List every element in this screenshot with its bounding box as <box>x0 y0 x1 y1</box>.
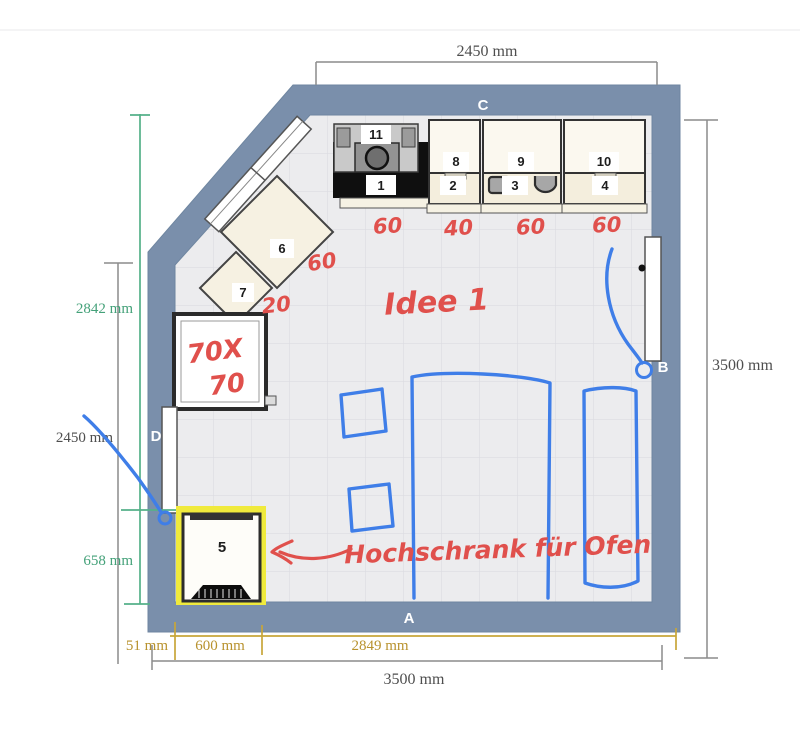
red-size-line2: 70 <box>207 368 247 402</box>
dim-bracket-right <box>684 120 718 658</box>
cabinet-unit-8-2[interactable]: 8 2 <box>427 120 482 213</box>
sink-basin-right <box>535 176 556 192</box>
cabinet-11-number: 11 <box>369 127 383 142</box>
cabinet-5-number: 5 <box>218 539 226 556</box>
red-width-cab6: 60 <box>306 248 339 276</box>
dim-left-lower: 658 mm <box>83 553 133 569</box>
dim-top: 2450 mm <box>457 43 518 60</box>
red-idea-title: Idee 1 <box>383 282 489 322</box>
door-d[interactable] <box>162 407 177 513</box>
cabinet-3-number: 3 <box>511 178 518 193</box>
cabinet-1-number: 1 <box>377 178 384 193</box>
cabinet-6-number: 6 <box>278 241 285 256</box>
tall-cabinet-5[interactable]: 5 <box>176 506 266 605</box>
dim-gold-mid: 600 mm <box>195 638 245 654</box>
dim-bottom: 3500 mm <box>384 671 445 688</box>
wall-label-d: D <box>151 428 162 445</box>
dim-gold-left: 51 mm <box>126 638 168 654</box>
cabinet-4-number: 4 <box>601 178 609 193</box>
hood-vent-icon <box>366 147 388 169</box>
cabinet-8-number: 8 <box>452 154 459 169</box>
dim-bracket-top <box>316 62 657 85</box>
cabinet-2-number: 2 <box>449 178 456 193</box>
dim-gold-right: 2849 mm <box>351 638 408 654</box>
hood-oven-unit[interactable]: 11 1 <box>333 124 432 208</box>
wall-label-a: A <box>404 610 415 627</box>
door-handle-dot <box>639 265 646 272</box>
red-width-2: 40 <box>442 215 474 241</box>
cabinet-unit-10-4[interactable]: 10 4 <box>562 120 647 213</box>
dim-right: 3500 mm <box>712 357 773 374</box>
red-width-cab7: 20 <box>260 292 292 319</box>
floor-plan-canvas: C A B D 6 7 11 1 8 <box>0 0 800 733</box>
floor-plan-svg: C A B D 6 7 11 1 8 <box>0 0 800 733</box>
dim-left-upper: 2842 mm <box>76 301 133 317</box>
red-width-1: 60 <box>372 213 402 238</box>
wall-label-c: C <box>478 97 489 114</box>
cabinet-7-number: 7 <box>239 285 246 300</box>
red-width-3: 60 <box>515 214 545 239</box>
sink-unit-9-3[interactable]: 9 3 <box>481 120 563 213</box>
red-width-4: 60 <box>592 213 622 238</box>
cabinet-9-number: 9 <box>517 154 524 169</box>
cabinet-10-number: 10 <box>597 154 611 169</box>
